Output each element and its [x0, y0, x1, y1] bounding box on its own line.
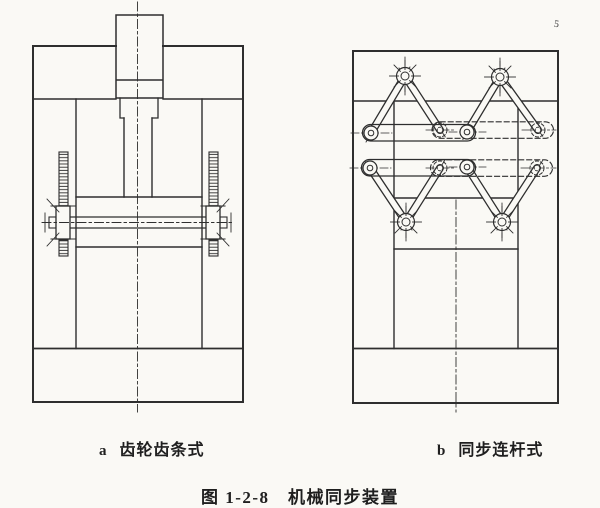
star-pivot-crown-left	[390, 61, 421, 92]
press-frame-b	[353, 51, 558, 403]
figure-drawing	[0, 0, 600, 508]
press-gear-rack-drawing	[33, 2, 243, 412]
star-pivot-crown-right	[485, 62, 516, 93]
subfigure-a-marker: a	[99, 443, 107, 459]
pivot-front-lower-left	[363, 161, 377, 175]
pivot-front-upper-center	[460, 125, 474, 139]
subfigure-a-text: 齿轮齿条式	[120, 442, 205, 459]
linkage-arms	[370, 76, 538, 222]
rack-right-lower	[209, 240, 218, 256]
figure-caption: 图 1-2-8 机械同步装置	[0, 483, 600, 508]
star-pivot-slide-right	[487, 207, 518, 238]
subfigure-b-marker: b	[437, 443, 445, 459]
pivot-front-lower-center	[460, 160, 474, 174]
pivot-front-upper-left	[364, 126, 378, 140]
arm-axis-centerlines	[350, 57, 556, 241]
hydraulic-cylinder	[116, 15, 163, 98]
rack-right-upper	[209, 152, 218, 206]
rack-left-lower	[59, 240, 68, 256]
scanned-figure-page: a齿轮齿条式 b同步连杆式 图 1-2-8 机械同步装置 5	[0, 0, 600, 508]
subfigure-b-label: b同步连杆式	[437, 436, 543, 460]
cylinder-flange	[120, 98, 158, 118]
frame-inner-edges-a	[76, 99, 202, 349]
sync-link-front-lower	[362, 160, 476, 177]
subfigure-b-text: 同步连杆式	[458, 442, 543, 459]
press-linkage-drawing	[350, 51, 558, 412]
ram-rod	[124, 118, 152, 197]
slide-plate-a	[76, 197, 202, 247]
rack-left-upper	[59, 152, 68, 206]
star-pivot-slide-left	[391, 207, 422, 238]
subfigure-a-label: a齿轮齿条式	[99, 436, 205, 460]
